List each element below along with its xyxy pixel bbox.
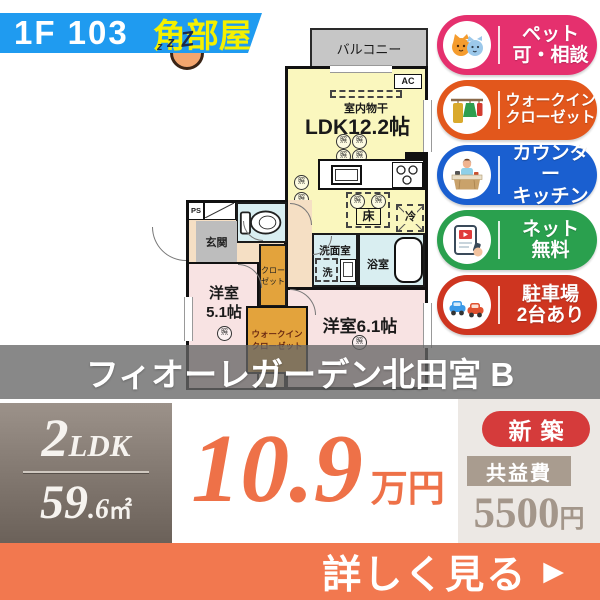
light-mark: 照 xyxy=(352,134,367,149)
fridge-label: 冷 xyxy=(404,211,417,224)
washer-label: 洗 xyxy=(321,264,334,279)
area-spec: 59.6㎡ xyxy=(40,475,132,530)
badge-separator xyxy=(498,286,500,324)
property-name: フィオーレガーデン北田宮 B xyxy=(86,348,514,396)
arrow-right-icon: ▶ xyxy=(543,556,564,587)
pipe-space-box: PS xyxy=(188,202,204,220)
badge-separator xyxy=(498,221,500,259)
indoor-drying-rail xyxy=(330,90,402,98)
entrance-area: 玄関 xyxy=(196,221,237,263)
parking-icon xyxy=(443,281,491,329)
property-name-banner: フィオーレガーデン北田宮 B xyxy=(0,345,600,399)
balcony-label: バルコニー xyxy=(337,39,402,58)
common-fee-amount: 5500円 xyxy=(458,489,600,538)
details-button-label: 詳しく見る xyxy=(322,544,527,600)
light-mark: 照 xyxy=(294,175,309,190)
badge-pets-text: ペット 可・相談 xyxy=(504,24,597,67)
washer-box: 洗 xyxy=(315,258,338,282)
badge-parking-text: 駐車場 2台あり xyxy=(504,284,597,327)
new-build-badge: 新築 xyxy=(482,411,590,447)
rent-price: 10.9 万円 xyxy=(172,416,464,544)
pets-icon xyxy=(443,21,491,69)
counter-kitchen-icon xyxy=(443,151,491,199)
stove-burners-icon xyxy=(393,163,421,186)
rent-unit: 万円 xyxy=(371,458,445,512)
badge-separator xyxy=(498,26,500,64)
details-button[interactable]: 詳しく見る ▶ xyxy=(0,543,600,600)
badge-parking: 駐車場 2台あり xyxy=(437,275,597,335)
bedroom-6-label: 洋室6.1帖 xyxy=(300,312,420,337)
fridge-box: 冷 xyxy=(396,204,424,232)
badge-free-internet-text: ネット 無料 xyxy=(504,219,597,262)
balcony-area: バルコニー xyxy=(310,28,428,68)
walkin-closet-icon xyxy=(443,86,491,134)
badge-separator xyxy=(498,91,500,129)
layout-spec: 2LDK xyxy=(42,407,131,469)
unit-banner: 1F 103 角部屋 xyxy=(0,13,262,53)
badge-walkin-closet: ウォークイン クローゼット xyxy=(437,80,597,140)
kitchen-sink xyxy=(331,165,362,185)
badge-counter-kitchen: カウンター キッチン xyxy=(437,145,597,205)
shoe-box xyxy=(204,202,236,220)
bedroom5-window xyxy=(184,297,193,341)
light-mark: 照 xyxy=(350,194,365,209)
floor-storage-label: 床 xyxy=(356,208,381,225)
light-mark: 照 xyxy=(371,194,386,209)
bathtub xyxy=(394,237,423,283)
ldk-window xyxy=(423,100,432,152)
spec-divider xyxy=(23,471,149,473)
light-mark: 照 xyxy=(336,134,351,149)
ac-unit-box: AC xyxy=(394,74,422,89)
badge-walkin-closet-text: ウォークイン クローゼット xyxy=(504,93,597,127)
closet: クロー ゼット xyxy=(259,244,287,307)
rent-amount: 10.9 xyxy=(191,416,363,524)
listing-card: バルコニー AC 室内物干 LDK12.2帖 照 照 照 照 照 照 xyxy=(0,0,600,600)
bedroom6-window xyxy=(423,303,432,348)
badge-separator xyxy=(498,156,500,194)
unit-number-label: 1F 103 xyxy=(14,14,129,52)
kitchen-stove xyxy=(392,162,423,188)
balcony-window xyxy=(330,65,392,73)
badge-free-internet: ネット 無料 xyxy=(437,210,597,270)
badge-counter-kitchen-text: カウンター キッチン xyxy=(504,143,597,207)
badge-pets-ok: ペット 可・相談 xyxy=(437,15,597,75)
sleep-z-mark: z xyxy=(167,34,175,51)
common-fee-label: 共益費 xyxy=(467,456,571,486)
free-internet-icon xyxy=(443,216,491,264)
entrance-door-arc xyxy=(152,227,186,261)
vanity-sink xyxy=(340,259,356,282)
sleep-z-mark: z xyxy=(157,41,163,53)
bathroom-label: 浴室 xyxy=(360,256,396,272)
entrance-label: 玄関 xyxy=(206,234,228,250)
spec-box: 2LDK 59.6㎡ xyxy=(0,403,172,543)
light-mark: 照 xyxy=(217,326,232,341)
shoe-box-diagonal xyxy=(205,203,234,218)
